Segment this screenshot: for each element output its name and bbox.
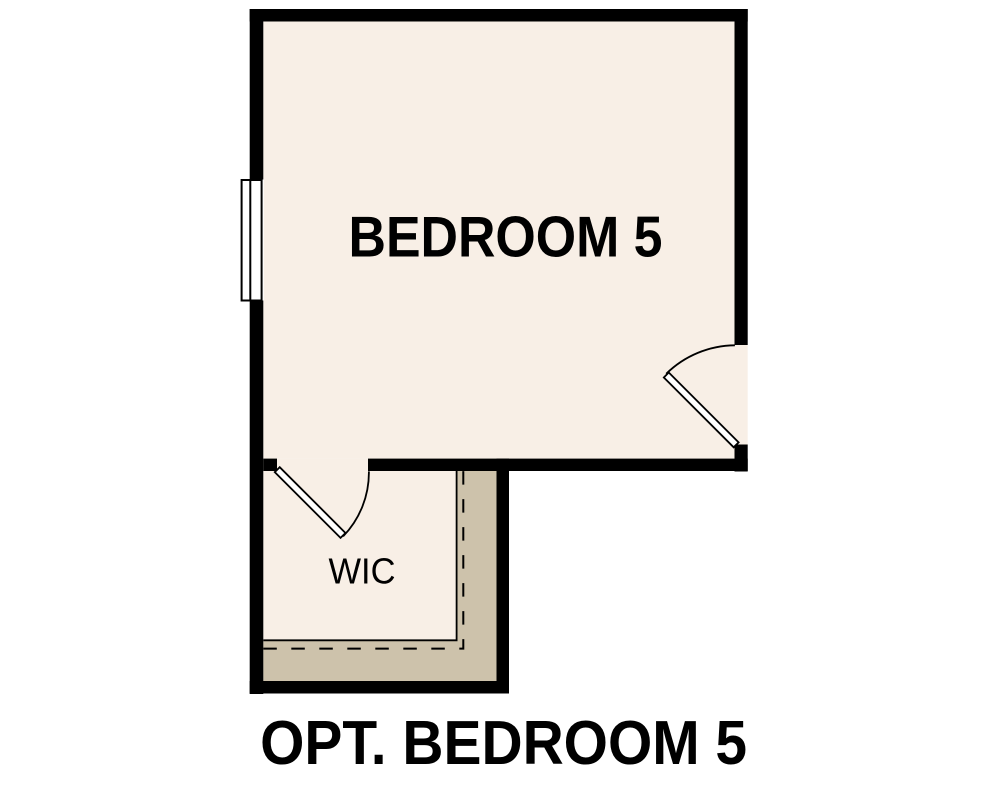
svg-text:BEDROOM 5: BEDROOM 5	[349, 206, 663, 270]
svg-text:OPT. BEDROOM 5: OPT. BEDROOM 5	[260, 709, 747, 778]
svg-text:WIC: WIC	[329, 550, 396, 591]
